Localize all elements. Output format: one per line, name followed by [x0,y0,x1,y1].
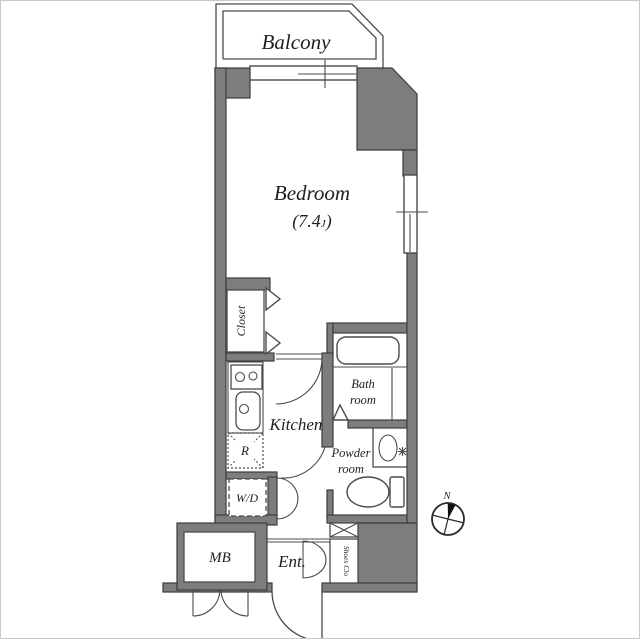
bath-folding-door-icon [333,405,348,420]
powder-room-label-line1: Powder [331,446,371,460]
shoes-door-arc [303,560,326,578]
shoes-closet-label: Shoes Clo [342,546,351,576]
wall-bath-powder [348,420,408,428]
floor-plan-page: N Balcony Bedroom (7.4J) Closet Kitchen … [0,0,640,639]
bedroom-label: Bedroom [274,181,350,205]
faucet-icon [398,447,407,456]
north-needle-icon [444,503,456,520]
shoes-door-arc [303,541,326,560]
kitchen-doorway [276,354,322,404]
balcony-window [250,66,357,80]
wall-top-right-block [357,68,417,150]
walls [163,68,417,592]
washer-dryer-label: W/D [236,491,258,505]
wall-left [215,68,226,523]
powder-room-label-line2: room [338,462,364,476]
kitchen-label: Kitchen [269,415,323,434]
mb-door-arc [221,590,248,616]
entrance-label: Ent. [277,552,306,571]
wall-powder-bottom [327,515,410,523]
closet-folding-door-icon [266,332,280,354]
bedroom-size-label: (7.4J) [292,211,331,232]
wd-door-arc [277,478,298,499]
compass: N [429,491,468,538]
wall-bottom-right [322,583,417,592]
wall-right-upper-strip [403,150,417,176]
closet-label: Closet [234,305,248,336]
entrance [267,523,358,639]
door-arc [276,358,322,404]
wall-bath-top [333,323,408,333]
wall-bottom-right-block [358,523,417,588]
bathtub-icon [337,337,399,364]
meter-box-label: MB [208,550,231,566]
wall-right [407,253,417,523]
wall-corridor-right [322,353,333,447]
wall-wd-right [268,477,277,517]
compass-north-label: N [442,491,451,502]
mb-door-leaf [193,590,248,616]
entrance-threshold [267,539,330,542]
closet-folding-door-icon [266,288,280,310]
wall-closet-top [226,278,270,290]
toilet-tank-icon [390,477,404,507]
wall-bath-left-upper [327,323,333,355]
mb-door-arc [193,590,220,616]
kitchen-counter [228,362,263,433]
front-door-arc [272,591,322,639]
wd-door-arc [277,498,298,519]
balcony-label: Balcony [262,30,331,54]
bath-room-label-line2: room [350,393,376,407]
floor-plan-canvas: N Balcony Bedroom (7.4J) Closet Kitchen … [0,0,640,639]
refrigerator-label: R [240,443,249,458]
wall-powder-left-lower [327,490,333,517]
powder-door-arc [281,447,325,478]
meter-box [184,532,255,616]
bath-room-label-line1: Bath [351,377,375,391]
toilet-bowl-icon [347,477,389,507]
